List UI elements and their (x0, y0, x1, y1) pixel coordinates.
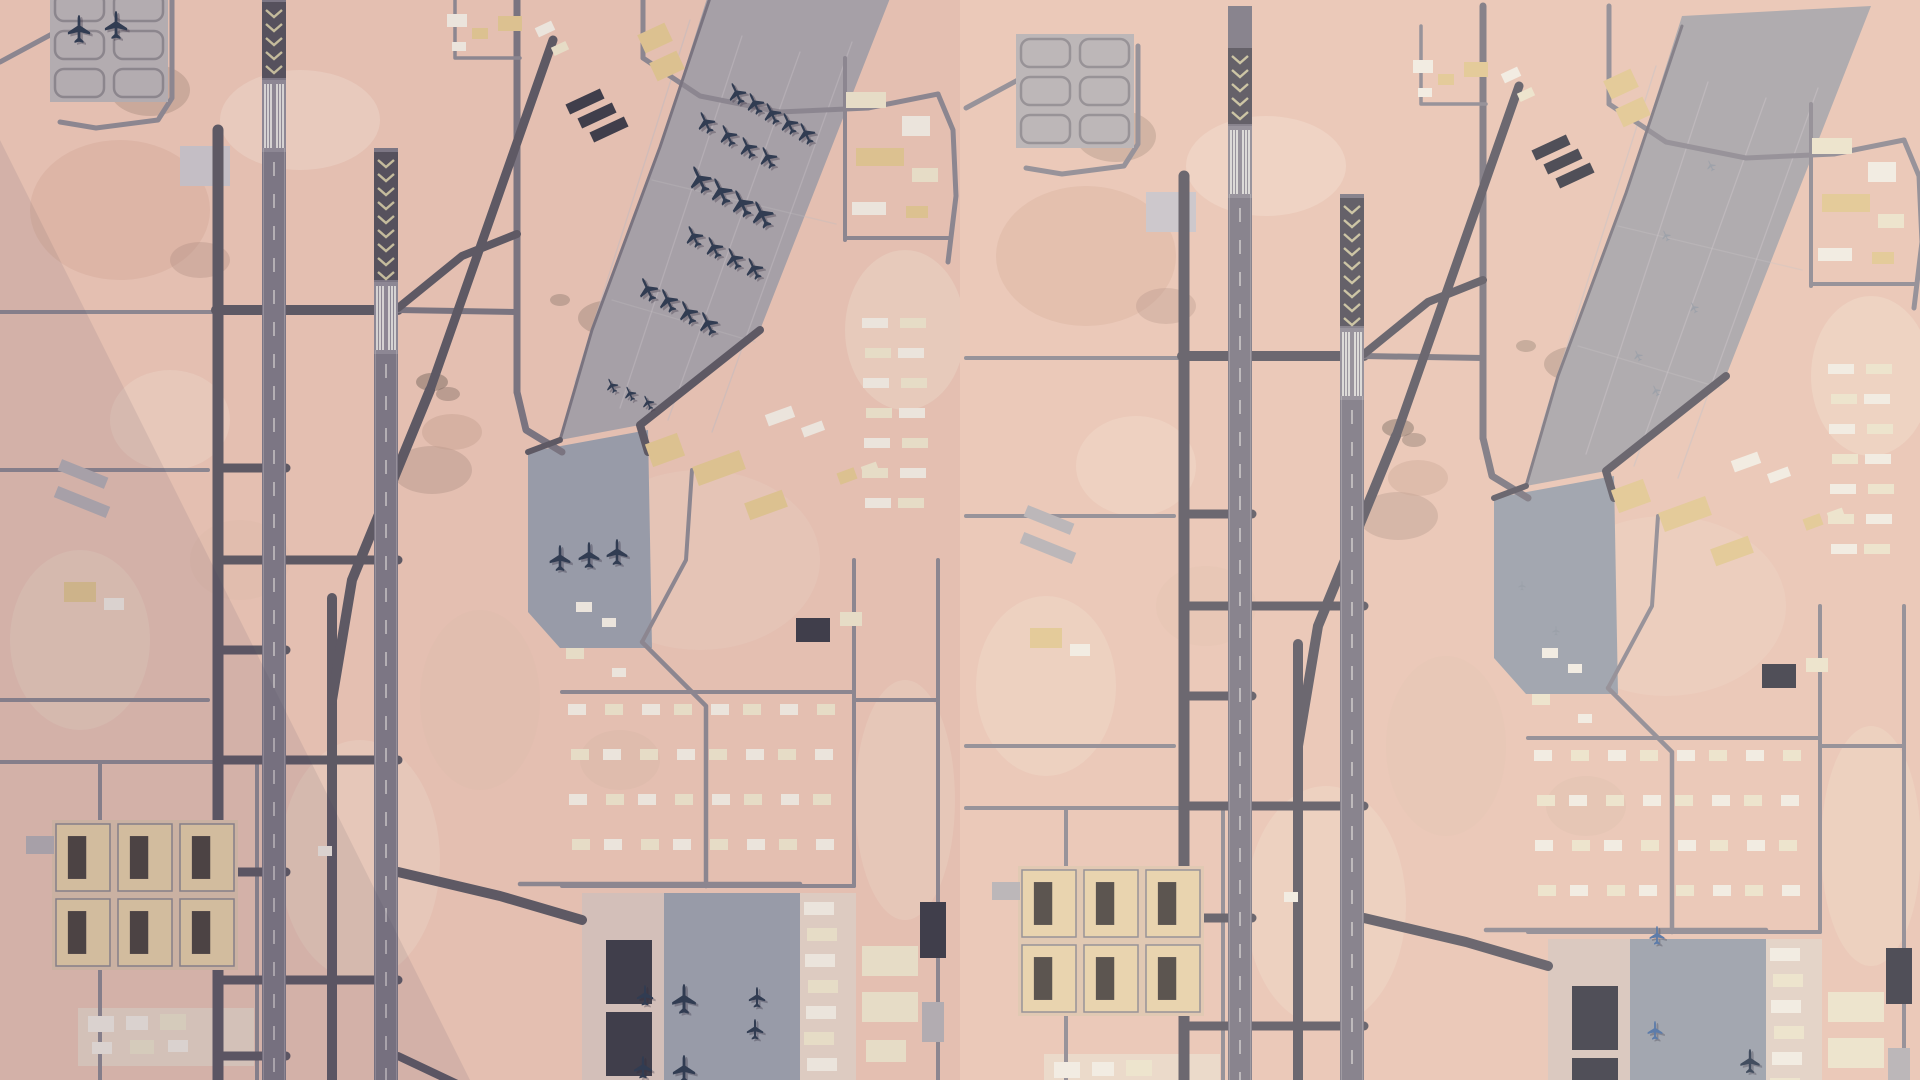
satellite-panel-right (960, 0, 1920, 1080)
satellite-panel-left (0, 0, 960, 1080)
satellite-image-after (960, 0, 1920, 1080)
satellite-image-before (0, 0, 960, 1080)
satellite-comparison (0, 0, 1920, 1080)
tone-overlay (0, 0, 960, 1080)
tone-overlay (960, 0, 1920, 1080)
